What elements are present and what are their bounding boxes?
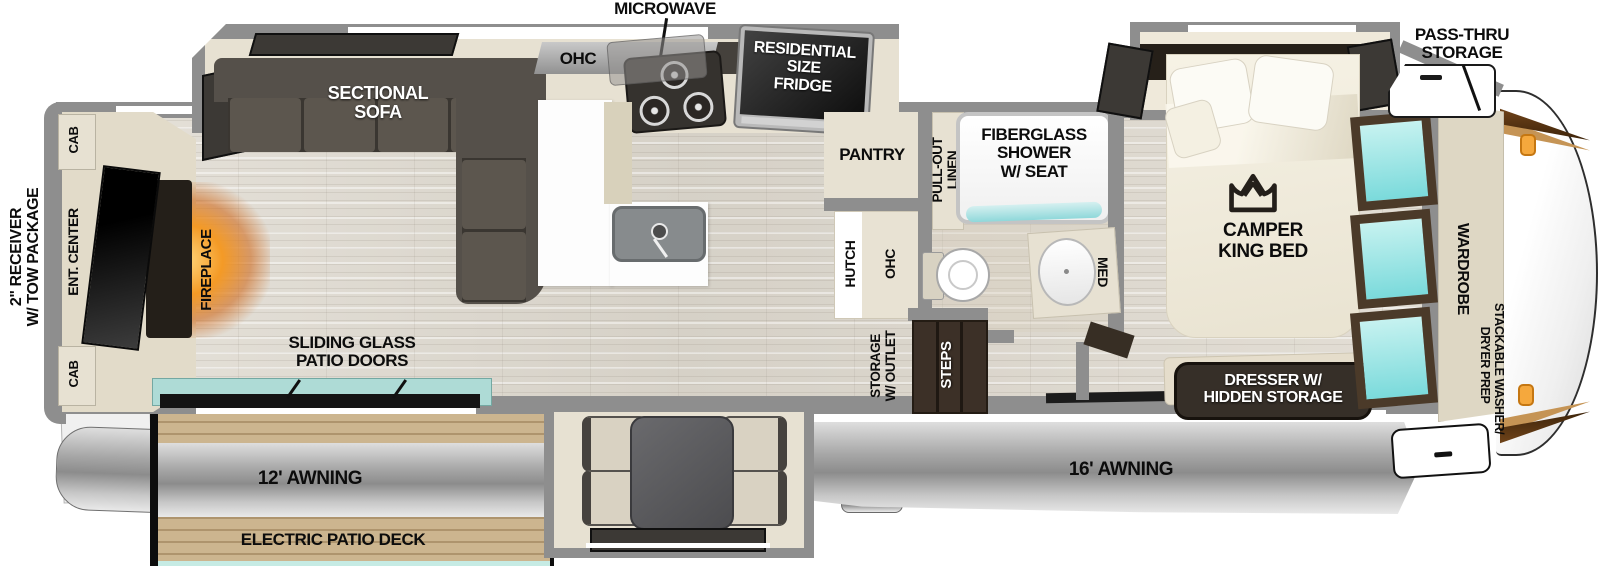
bed-label-line1: CAMPER [1183, 221, 1343, 242]
deck-wood-bottom: ELECTRIC PATIO DECK [158, 517, 550, 561]
patio-door-frame [160, 394, 480, 408]
bed-label: CAMPER KING BED [1183, 221, 1343, 262]
shower-label-line2: SHOWER [964, 144, 1104, 162]
slide-top-window [249, 33, 460, 56]
pillow [1247, 54, 1336, 132]
stove-burner [638, 95, 671, 128]
patio-deck: 12' AWNING ELECTRIC PATIO DECK [150, 402, 554, 566]
bedroom-slide-gap [1188, 25, 1356, 32]
cap-handle-bottom [1518, 384, 1534, 406]
pass-thru-line1: PASS-THRU [1382, 26, 1542, 44]
pass-thru-label: PASS-THRU STORAGE [1382, 26, 1542, 63]
pantry: PANTRY [824, 112, 920, 200]
wardrobe-label: WARDROBE [1451, 213, 1471, 325]
hutch-ohc-label: OHC [883, 229, 901, 299]
storage-outlet-label: STORAGE W/ OUTLET [869, 310, 903, 422]
washer-label-line2: DRYER PREP [1478, 303, 1492, 427]
pass-thru-line2: STORAGE [1382, 44, 1542, 62]
receiver-line1: 2" RECEIVER [8, 169, 25, 345]
main-awning: 16' AWNING [786, 422, 1420, 514]
shower-label: FIBERGLASS SHOWER W/ SEAT [964, 126, 1104, 181]
front-window-3 [1350, 307, 1438, 410]
sofa-cushion [462, 232, 526, 301]
dresser-label-box: DRESSER W/ HIDDEN STORAGE [1174, 362, 1372, 420]
deck-edge-strip [158, 561, 550, 566]
dinette-slide [544, 402, 814, 558]
pantry-label: PANTRY [824, 146, 920, 164]
fridge-label: RESIDENTIAL SIZE FRIDGE [743, 38, 864, 97]
shower-label-line3: W/ SEAT [964, 163, 1104, 181]
front-cap [1496, 90, 1598, 456]
rear-awning: 12' AWNING [158, 443, 550, 517]
cap-handle-top [1520, 134, 1536, 156]
dinette-table [630, 416, 734, 530]
sofa-label-line2: SOFA [300, 103, 456, 122]
crown-icon [1225, 171, 1281, 217]
sectional-sofa-label: SECTIONAL SOFA [300, 84, 456, 123]
patio-doors-line1: SLIDING GLASS [262, 334, 442, 352]
toilet-bowl-inner [948, 260, 978, 290]
storage-label-line2: W/ OUTLET [884, 310, 899, 422]
patio-doors-line2: PATIO DOORS [262, 352, 442, 370]
faucet [651, 223, 668, 240]
door-flap-handle [1434, 451, 1452, 457]
med-label: MED [1094, 242, 1110, 302]
counter-edge [604, 102, 632, 204]
microwave-label: MICROWAVE [600, 0, 730, 18]
step-divider [960, 322, 963, 412]
bath-sink-drain [1064, 269, 1069, 274]
counter-left [538, 100, 612, 286]
awning-main-label: 16' AWNING [1041, 460, 1201, 481]
dresser-label: DRESSER W/ HIDDEN STORAGE [1177, 372, 1369, 407]
dresser-label-line2: HIDDEN STORAGE [1177, 389, 1369, 406]
awning-rear-label: 12' AWNING [230, 469, 390, 490]
front-window-2 [1350, 209, 1438, 310]
cab-bottom-label: CAB [67, 339, 85, 409]
washer-prep-label: STACKABLE WASHER/ DRYER PREP [1475, 303, 1505, 427]
ent-center-label: ENT. CENTER [66, 197, 84, 307]
pass-thru-latch [1420, 75, 1442, 80]
stove-burner [682, 91, 715, 124]
pantry-wall [824, 198, 920, 211]
kitchen-ohc-label: OHC [548, 50, 608, 68]
receiver-label: 2" RECEIVER W/ TOW PACKAGE [8, 169, 48, 345]
toilet-bowl [936, 248, 990, 302]
patio-deck-label: ELECTRIC PATIO DECK [213, 531, 453, 549]
hutch-label: HUTCH [843, 229, 861, 299]
bed-label-line2: KING BED [1183, 242, 1343, 263]
linen-label-line1: PULL-OUT [931, 114, 946, 226]
deck-wood-top [158, 409, 550, 443]
sofa-cushion [462, 160, 526, 229]
shower-label-line1: FIBERGLASS [964, 126, 1104, 144]
cab-top-label: CAB [67, 105, 85, 175]
fireplace-label: FIREPLACE [199, 210, 217, 330]
dinette-window-gap [586, 543, 770, 548]
shower-seat [966, 202, 1102, 223]
washer-label-line1: STACKABLE WASHER/ [1492, 303, 1506, 427]
steps-label: STEPS [939, 325, 957, 405]
patio-doors-label: SLIDING GLASS PATIO DOORS [262, 334, 442, 371]
bedroom-wall-stub [1076, 342, 1089, 400]
dresser-label-line1: DRESSER W/ [1177, 372, 1369, 389]
shower: FIBERGLASS SHOWER W/ SEAT [956, 112, 1112, 224]
dinette-window [590, 528, 766, 552]
patio-door-gap [196, 408, 476, 414]
camper-king-bed: CAMPER KING BED [1166, 54, 1360, 338]
receiver-line2: W/ TOW PACKAGE [25, 169, 42, 345]
kitchen-sink [612, 206, 706, 262]
microwave-overlay [606, 34, 707, 86]
sofa-cushion [230, 98, 301, 152]
sectional-sofa-arm-cushions [462, 158, 526, 302]
storage-label-line1: STORAGE [869, 310, 884, 422]
rv-floorplan-canvas: 2" RECEIVER W/ TOW PACKAGE 12' AWNING EL… [0, 0, 1600, 566]
faucet-handle [653, 238, 668, 258]
sofa-label-line1: SECTIONAL [300, 84, 456, 103]
compartment-door-flap [1390, 423, 1491, 480]
front-window-1 [1350, 111, 1438, 212]
